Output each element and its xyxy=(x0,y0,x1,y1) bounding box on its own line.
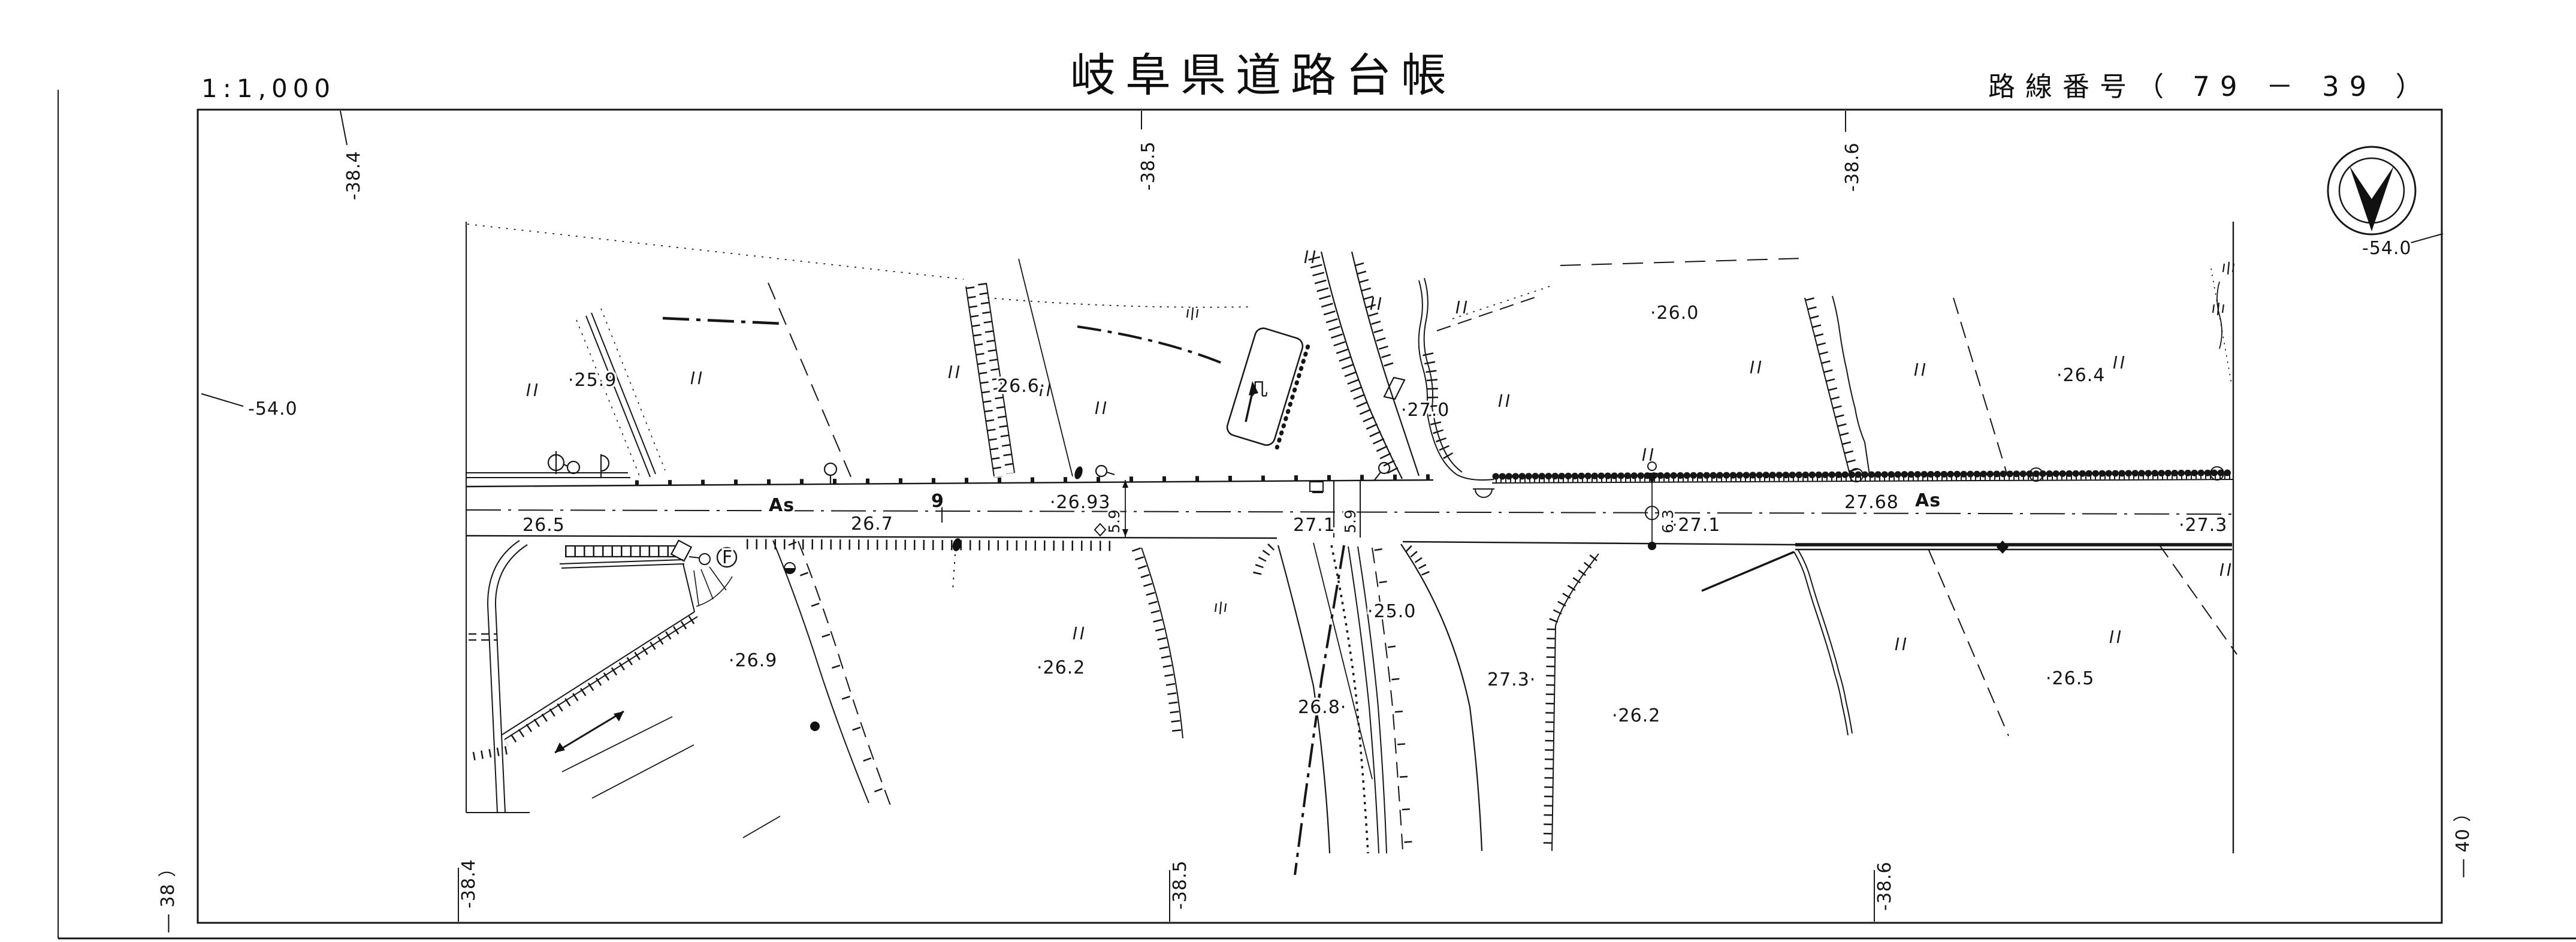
fire-hydrant: F xyxy=(689,547,736,606)
building-and-branch-lane: 几 xyxy=(1225,252,1553,480)
parcel-boundaries-north xyxy=(467,224,1251,480)
edge-elev-2: 26.7 xyxy=(851,514,893,535)
compass-grid-label: -54.0 xyxy=(2362,238,2412,259)
grid-ref-top-left: -38.4 xyxy=(343,150,364,200)
north-compass: -54.0 xyxy=(2328,147,2443,259)
survey-station xyxy=(1643,448,1659,550)
spot-elev-26-6: 26.6· xyxy=(997,376,1046,397)
edge-elev-5: ·27.3 xyxy=(2179,515,2227,536)
road-ledger-sheet: 1:1,000 岐阜県道路台帳 路線番号（ 79 － 39 ） -54.0 -3… xyxy=(0,0,2576,942)
south-compound xyxy=(469,541,780,838)
land-use-marks xyxy=(527,250,2234,650)
centerline-elev-right: 27.68 xyxy=(1844,492,1899,513)
spot-elev-25-9: ·25.9 xyxy=(568,370,617,391)
route-number-label: 路線番号（ 79 － 39 ） xyxy=(1988,71,2433,102)
surface-type-left: As xyxy=(769,495,795,516)
centerline-elev-left: ·26.93 xyxy=(1050,492,1110,513)
road-labels: As 9 ·26.93 26.5 26.7 27.1 ·27.1 27.68 A… xyxy=(523,490,2227,536)
edge-elev-1: 26.5 xyxy=(523,515,565,536)
parcel-boundaries-northeast xyxy=(1560,258,2231,477)
road-width-dim-3: 6.3 xyxy=(1659,509,1677,533)
road-ledger-map: 1:1,000 岐阜県道路台帳 路線番号（ 79 － 39 ） -54.0 -3… xyxy=(0,0,2576,942)
road-bottom-edge xyxy=(466,536,1277,538)
grid-ref-top-right: -38.6 xyxy=(1842,142,1863,192)
spot-elevation-labels: ·25.9 26.6· ·27.0 ·26.0 ·26.4 ·26.9 ·26.… xyxy=(568,303,2105,726)
edge-elev-3: 27.1 xyxy=(1293,515,1336,536)
north-arrow-icon xyxy=(2349,166,2394,231)
grid-ref-left: -54.0 xyxy=(248,398,298,419)
road-width-dim-2: 5.9 xyxy=(1342,509,1359,533)
south-channel-west xyxy=(773,541,890,807)
map-content: 几 xyxy=(466,222,2237,875)
spot-elev-25-0: ·25.0 xyxy=(1367,601,1416,622)
south-parcels-east xyxy=(1548,544,2237,851)
grid-ref-top-center: -38.5 xyxy=(1138,141,1159,191)
header: 1:1,000 岐阜県道路台帳 路線番号（ 79 － 39 ） xyxy=(201,49,2433,103)
scale-label: 1:1,000 xyxy=(201,74,336,103)
spot-elev-26-2-center: ·26.2 xyxy=(1037,657,1085,678)
spot-elev-26-4: ·26.4 xyxy=(2056,365,2105,386)
parking-symbol-icon xyxy=(601,454,609,478)
grid-ref-bottom-right: -38.6 xyxy=(1874,861,1895,911)
grid-ref-bottom-left: -38.4 xyxy=(458,859,479,908)
spot-elev-26-5-east: ·26.5 xyxy=(2046,668,2094,689)
spot-elev-27-0: ·27.0 xyxy=(1401,400,1449,421)
grid-ref-bottom-center: -38.5 xyxy=(1170,860,1191,910)
station-number: 9 xyxy=(931,491,944,512)
spot-elev-26-2-east: ·26.2 xyxy=(1612,705,1660,726)
road-width-dim-1: 5.9 xyxy=(1106,509,1123,533)
spot-elev-26-9: ·26.9 xyxy=(729,650,777,671)
hydrant-label: F xyxy=(722,547,733,568)
margin-sheet-ref-left: ― 38 ） xyxy=(158,859,179,932)
spot-elev-27-3-branch: 27.3· xyxy=(1487,669,1536,690)
surface-type-right: As xyxy=(1915,490,1941,511)
spot-elev-26-0: ·26.0 xyxy=(1650,303,1699,324)
margin-sheet-ref-right: ― 40 ） xyxy=(2453,804,2474,877)
page-title: 岐阜県道路台帳 xyxy=(1070,49,1456,102)
road-top-edge xyxy=(466,480,1433,487)
edge-elev-4: ·27.1 xyxy=(1672,515,1720,536)
spot-elev-26-8: 26.8· xyxy=(1298,697,1346,718)
